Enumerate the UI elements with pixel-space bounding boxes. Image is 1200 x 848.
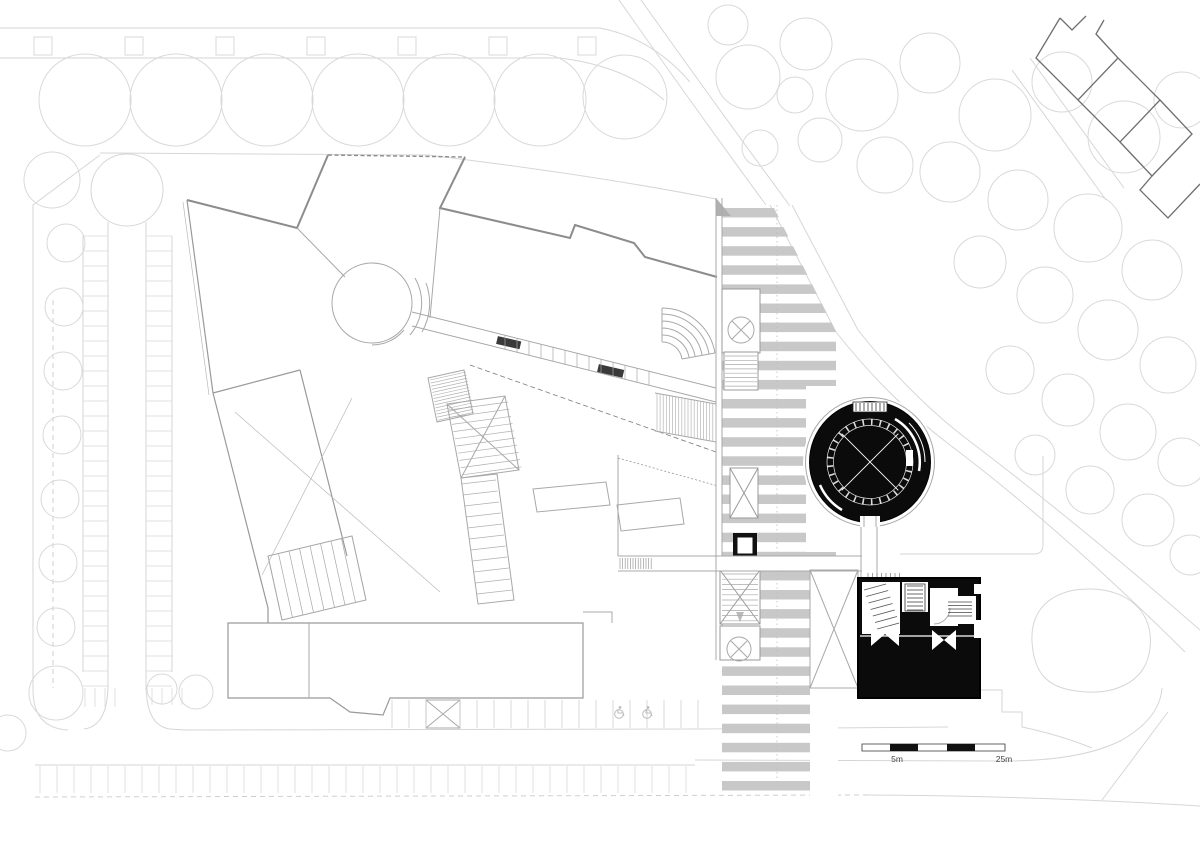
stall-outer-edges [83,236,172,672]
tree-icon [1122,240,1182,300]
tree-icon [1066,466,1114,514]
tree-icon [179,675,213,709]
tree-icon [1017,267,1073,323]
tree-icon [41,480,79,518]
south-dashed-line [35,795,868,797]
planter-square [125,37,143,55]
wing-room-partitions [268,536,366,620]
scale-label-5m: 5m [891,754,903,764]
neighbor-buildings [1036,16,1200,218]
bb-east-notch-2 [974,620,981,638]
crosswalk-stripe [722,246,836,256]
crosswalk-stripe [722,265,836,275]
boulevard-edge-1 [619,0,766,205]
entry-ramp [657,394,716,441]
skylight-1 [533,482,610,512]
rotunda-top-vent [853,402,887,412]
tree-icon [1170,535,1200,575]
tree-icon [988,170,1048,230]
building-west-edge [187,200,213,393]
corner-stall-a [85,688,115,707]
south-outer-line [868,795,1200,806]
tree-icon [959,79,1031,151]
planter-square [578,37,596,55]
site-plan-page: 5m 25m [0,0,1200,848]
tree-icon [920,142,980,202]
tree-icon [1078,300,1138,360]
cw-stair-x [730,468,758,518]
blackbox-top-ticks [868,573,900,577]
bridge-deck [718,556,864,571]
skylight-2 [617,498,684,531]
boulevard-edge-2 [641,0,790,206]
tree-icon [780,18,832,70]
wheelchair-icon [615,706,624,718]
bridge-hatch [620,558,651,569]
planter-square [307,37,325,55]
tree-icon [24,152,80,208]
cw-room-lower [720,626,760,660]
x-parking-stall [426,700,460,728]
neighbor-house-1 [1036,18,1118,100]
scale-bar-body [862,744,1005,751]
tree-icon [777,77,813,113]
scale-bar-segment-2 [947,744,975,751]
tree-icon [312,54,404,146]
tree-icon [954,236,1006,288]
se-plaza-steps [980,690,1092,748]
tree-icon [857,137,913,193]
scale-label-25m: 25m [996,754,1013,764]
driveway-edges [108,222,146,690]
building-outline-north [187,155,328,228]
courtyard-arcs [372,278,430,345]
tree-icon [583,55,667,139]
bb-fixture-room [944,596,976,624]
south-block-steps [583,612,612,623]
crosswalk-stripe [722,227,836,237]
tree-icon [1100,404,1156,460]
vegetation-layer [0,5,1200,751]
culdesac-bulb [91,154,163,226]
tree-icon [0,715,26,751]
cw-stair-upper-box [724,352,758,390]
tree-icon [37,608,75,646]
tree-row-mid-line [0,58,664,100]
trees-top [39,54,667,146]
trees-bottom [0,666,213,751]
bb-ladder-room [902,582,928,612]
west-boundary [33,155,100,690]
southwest-wing [213,370,347,623]
planter-square [489,37,507,55]
tree-icon [45,288,83,326]
tree-icon [1122,494,1174,546]
site-plan-drawing: 5m 25m [0,0,1200,848]
tree-icon [826,59,898,131]
tree-icon [1042,374,1094,426]
tree-icon [986,346,1034,394]
tree-icon [1140,337,1196,393]
neighbor-house-4 [1140,176,1200,218]
triangle-marker-icon [716,198,731,216]
tree-icon [47,224,85,262]
tree-icon [221,54,313,146]
tree-icon [43,416,81,454]
planter-squares [34,37,596,55]
scale-bar-segment-1 [890,744,918,751]
tree-icon [1054,194,1122,262]
lower-stair-outline [461,474,514,604]
tree-icon [130,54,222,146]
amphitheater-arcs [662,308,715,359]
tree-icon [29,666,83,720]
island-blob [1032,589,1151,692]
section-line-2 [618,458,718,486]
corner-stall-b [152,688,182,705]
plaza-top-boundary [100,153,716,199]
rotunda-east-panel [906,450,913,466]
dense-stair-hatch [430,372,474,420]
tree-icon [716,45,780,109]
left-stalls-west [83,236,108,686]
circular-courtyard [332,263,412,343]
tree-icon [1015,435,1055,475]
tree-icon [39,544,77,582]
tree-icon [39,54,131,146]
crosswalk-stripe [722,208,836,218]
planter-square [398,37,416,55]
roof-diagonal-2 [262,398,352,575]
neighbor-house-5 [1060,16,1086,30]
building-west-edge-inner [183,202,209,395]
stripe-mask-south [810,566,838,796]
planter-square [34,37,52,55]
footbridge [618,556,864,571]
south-block-outline [228,623,583,715]
courtyard-link-line [297,228,345,277]
se-median-diagonal [1102,712,1168,800]
left-stalls-east [146,236,172,686]
tree-icon [798,118,842,162]
tree-icon [403,54,495,146]
tree-icon [1158,438,1200,486]
tree-icon [1154,72,1200,128]
planter-square [216,37,234,55]
roof-diagonal-1 [235,412,440,592]
rotunda-south-gap [860,516,880,527]
black-door-leaf [737,537,753,554]
accessible-icons [615,706,652,718]
mid-stalls-a [392,700,426,728]
tree-icon [44,352,82,390]
tree-icon [900,33,960,93]
main-building [183,155,718,728]
corridor-partitions [505,335,649,385]
main-stair-outline [447,396,519,478]
tree-icon [708,5,748,45]
bb-east-notch-1 [974,584,981,594]
mid-stalls-b [460,700,698,728]
tree-icon [494,54,586,146]
bottom-stalls [40,766,686,793]
